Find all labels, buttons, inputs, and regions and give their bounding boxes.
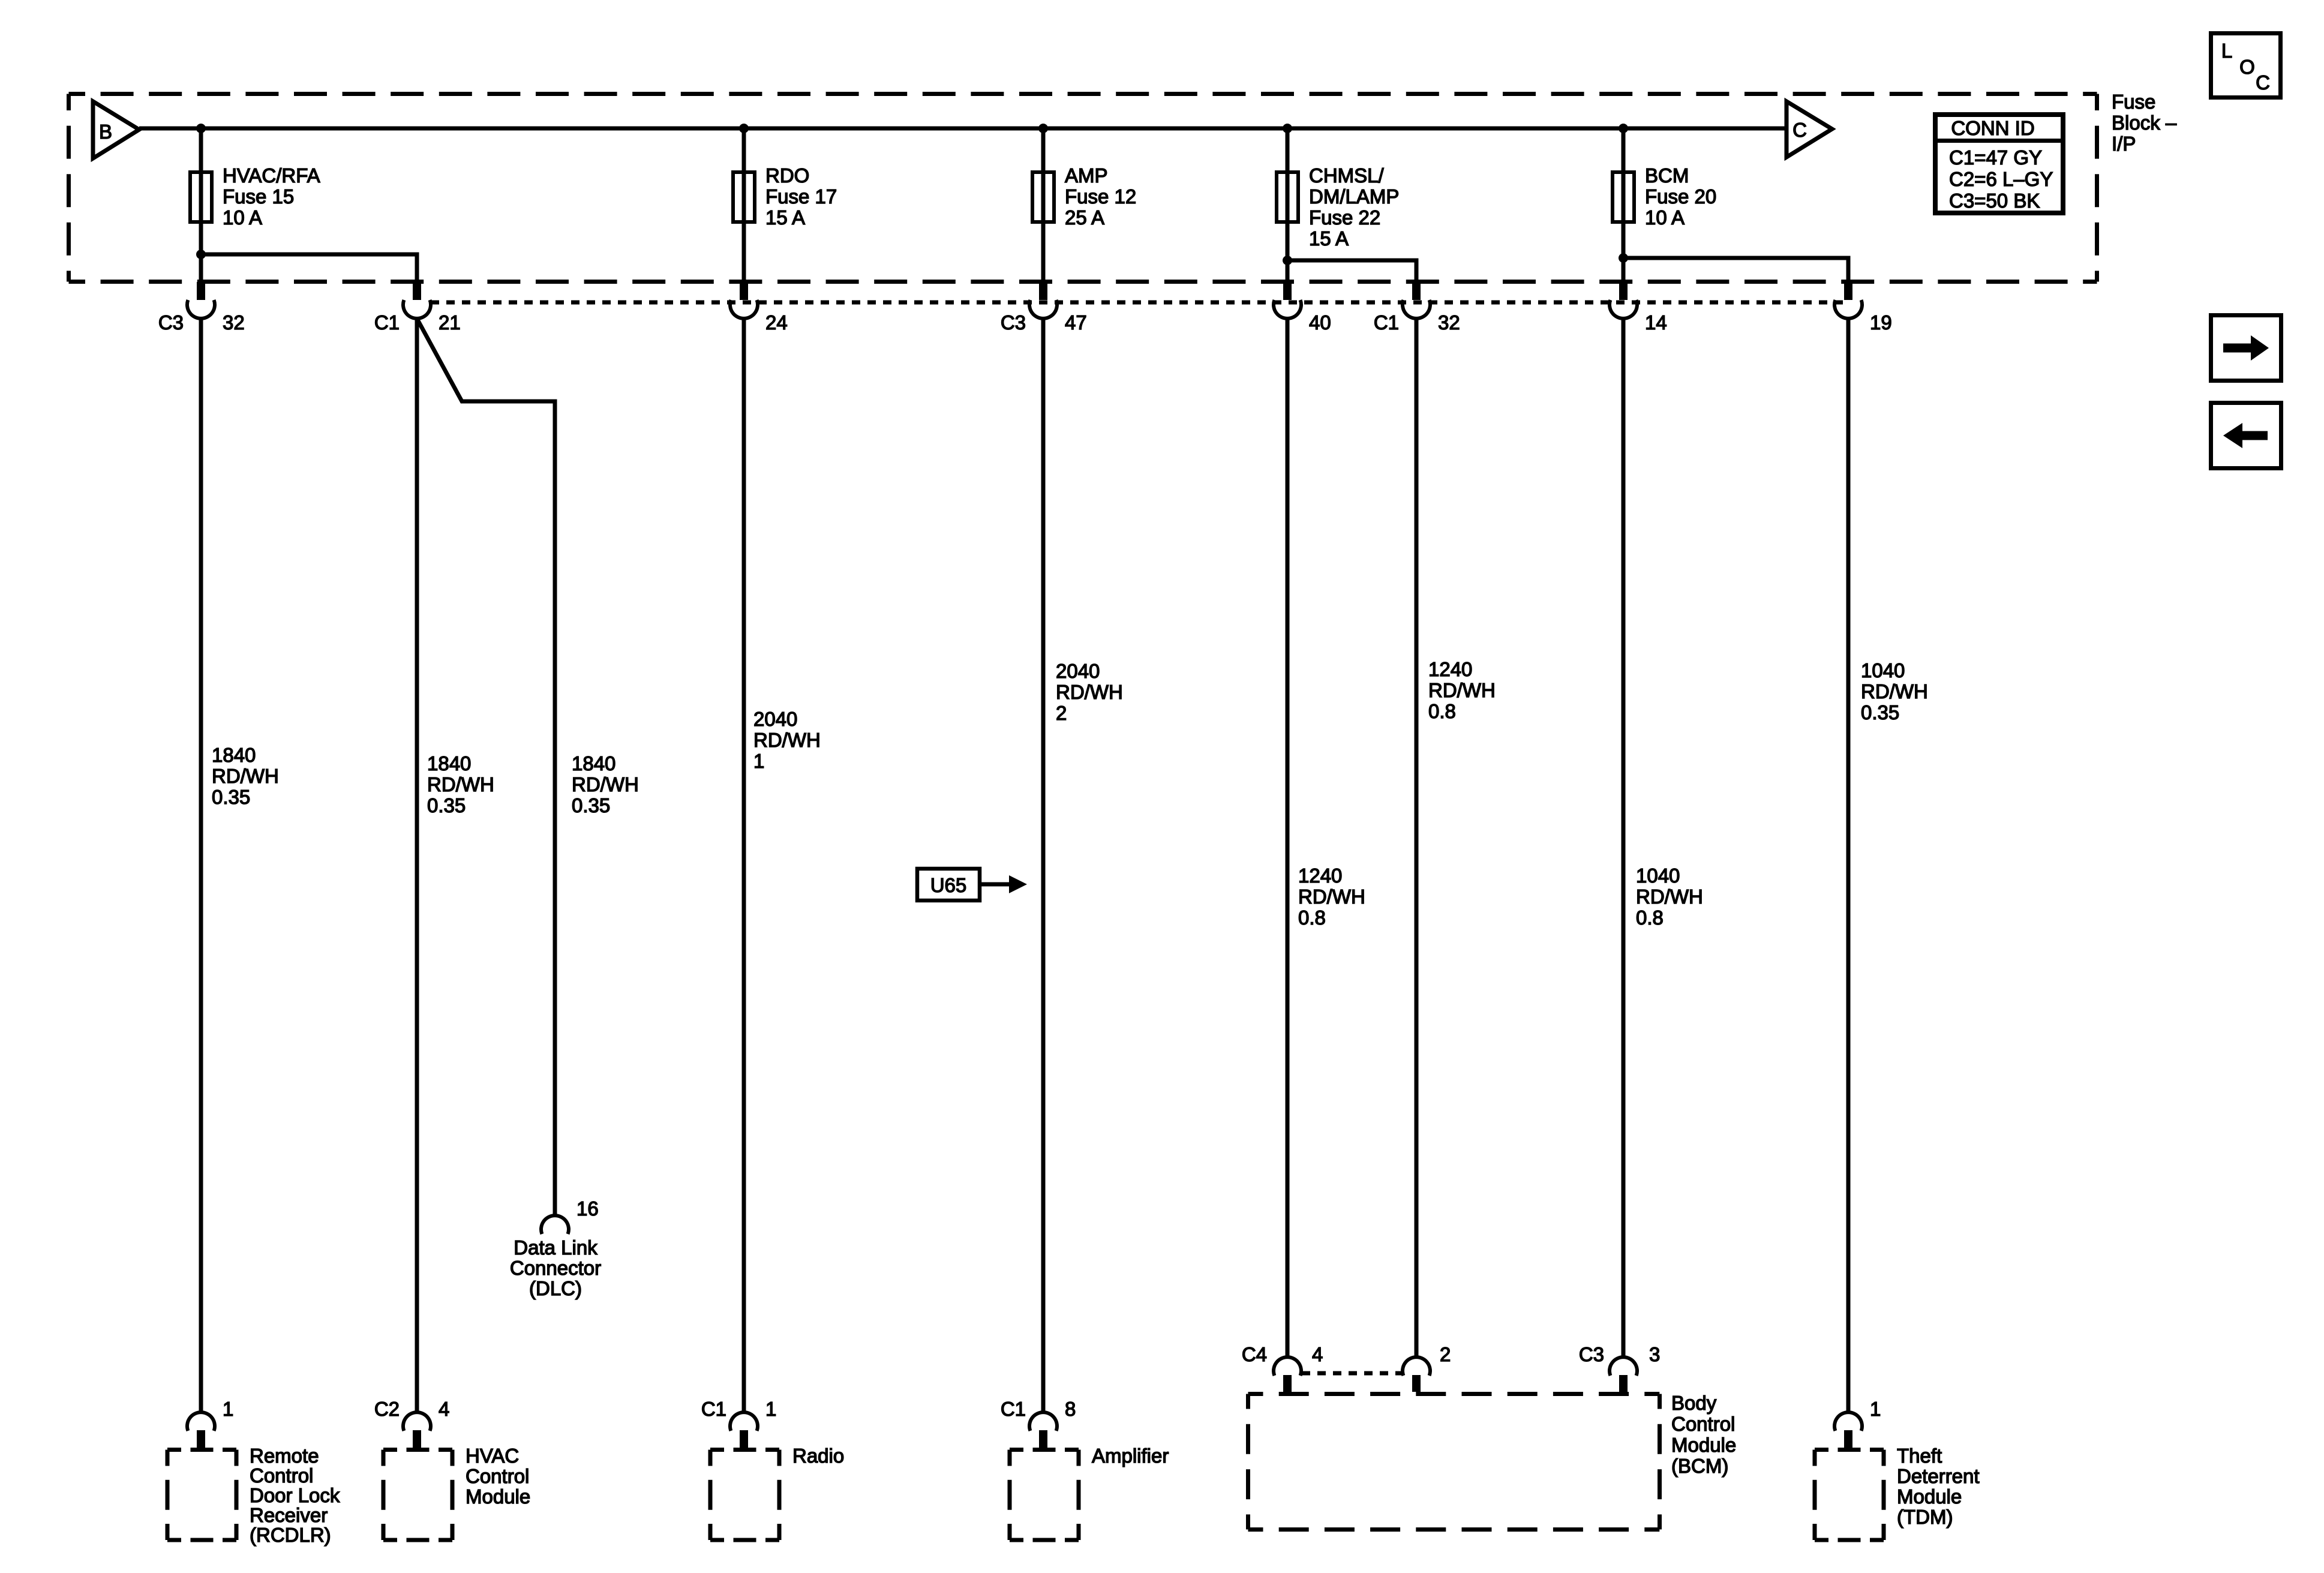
svg-text:19: 19	[1870, 311, 1892, 334]
svg-text:2040: 2040	[753, 708, 797, 730]
svg-text:RD/WH: RD/WH	[212, 765, 279, 787]
svg-text:47: 47	[1065, 311, 1087, 334]
svg-text:Control: Control	[250, 1464, 313, 1487]
svg-text:Door Lock: Door Lock	[250, 1484, 340, 1506]
svg-text:3: 3	[1649, 1343, 1660, 1365]
svg-text:25 A: 25 A	[1065, 206, 1104, 229]
svg-text:Connector: Connector	[510, 1257, 601, 1279]
svg-text:Module: Module	[1897, 1485, 1962, 1508]
svg-text:C1: C1	[1001, 1398, 1026, 1420]
svg-text:CONN ID: CONN ID	[1951, 117, 2034, 139]
svg-text:C3=50 BK: C3=50 BK	[1949, 190, 2040, 212]
svg-text:U65: U65	[930, 874, 967, 896]
svg-text:15 A: 15 A	[765, 206, 805, 229]
svg-text:C: C	[2256, 71, 2270, 94]
svg-text:C3: C3	[1579, 1343, 1604, 1365]
svg-text:1: 1	[223, 1398, 233, 1420]
svg-text:Fuse 17: Fuse 17	[765, 185, 837, 208]
svg-text:Fuse 12: Fuse 12	[1065, 185, 1136, 208]
svg-text:0.8: 0.8	[1298, 906, 1326, 929]
svg-text:C3: C3	[158, 311, 184, 334]
svg-text:24: 24	[765, 311, 788, 334]
svg-text:(TDM): (TDM)	[1897, 1506, 1953, 1528]
svg-text:1840: 1840	[572, 752, 615, 775]
svg-text:32: 32	[1438, 311, 1460, 334]
svg-text:C4: C4	[1242, 1343, 1267, 1365]
svg-text:C: C	[1792, 119, 1807, 141]
svg-text:Control: Control	[466, 1465, 529, 1487]
svg-text:C2=6 L–GY: C2=6 L–GY	[1949, 168, 2053, 190]
svg-text:4: 4	[439, 1398, 449, 1420]
svg-text:0.8: 0.8	[1428, 700, 1456, 722]
svg-text:1: 1	[753, 750, 764, 772]
svg-text:15 A: 15 A	[1309, 227, 1349, 250]
svg-text:0.8: 0.8	[1636, 906, 1664, 929]
svg-text:Control: Control	[1671, 1413, 1735, 1435]
svg-text:Fuse: Fuse	[2112, 91, 2155, 113]
svg-text:RD/WH: RD/WH	[1636, 885, 1703, 908]
svg-text:Theft: Theft	[1897, 1445, 1942, 1467]
svg-text:10 A: 10 A	[223, 206, 262, 229]
svg-text:Module: Module	[466, 1485, 530, 1508]
svg-text:10 A: 10 A	[1645, 206, 1685, 229]
svg-text:16: 16	[577, 1197, 599, 1220]
svg-text:32: 32	[223, 311, 245, 334]
svg-text:2040: 2040	[1056, 660, 1100, 682]
svg-text:(BCM): (BCM)	[1671, 1455, 1728, 1477]
svg-text:40: 40	[1309, 311, 1331, 334]
svg-text:HVAC: HVAC	[466, 1445, 519, 1467]
svg-text:2: 2	[1440, 1343, 1451, 1365]
svg-text:8: 8	[1065, 1398, 1076, 1420]
svg-text:Module: Module	[1671, 1434, 1736, 1456]
svg-text:1840: 1840	[212, 744, 256, 766]
svg-text:HVAC/RFA: HVAC/RFA	[223, 164, 320, 187]
svg-text:I/P: I/P	[2112, 133, 2136, 155]
svg-text:0.35: 0.35	[427, 794, 466, 816]
svg-text:1240: 1240	[1428, 658, 1472, 680]
svg-text:(RCDLR): (RCDLR)	[250, 1524, 331, 1546]
svg-text:RD/WH: RD/WH	[427, 773, 494, 795]
svg-text:Block –: Block –	[2112, 112, 2177, 134]
svg-text:Radio: Radio	[792, 1445, 844, 1467]
svg-text:C1: C1	[1374, 311, 1399, 334]
svg-text:B: B	[99, 121, 112, 143]
svg-text:O: O	[2239, 56, 2255, 78]
svg-text:BCM: BCM	[1645, 164, 1689, 187]
svg-text:2: 2	[1056, 702, 1067, 724]
svg-text:RD/WH: RD/WH	[1861, 680, 1928, 703]
svg-text:C2: C2	[374, 1398, 400, 1420]
svg-text:RDO: RDO	[765, 164, 809, 187]
svg-text:Body: Body	[1671, 1392, 1717, 1414]
svg-text:C1: C1	[701, 1398, 726, 1420]
svg-text:Receiver: Receiver	[250, 1504, 328, 1526]
svg-text:RD/WH: RD/WH	[1056, 681, 1123, 703]
svg-text:AMP: AMP	[1065, 164, 1108, 187]
svg-text:RD/WH: RD/WH	[572, 773, 639, 795]
svg-text:Data Link: Data Link	[514, 1236, 597, 1259]
svg-text:C3: C3	[1001, 311, 1026, 334]
svg-text:C1=47 GY: C1=47 GY	[1949, 146, 2042, 169]
svg-text:1840: 1840	[427, 752, 471, 775]
svg-text:0.35: 0.35	[1861, 701, 1899, 724]
svg-text:RD/WH: RD/WH	[753, 729, 821, 751]
svg-text:C1: C1	[374, 311, 400, 334]
svg-text:1040: 1040	[1861, 659, 1905, 682]
svg-text:Fuse 15: Fuse 15	[223, 185, 294, 208]
svg-text:CHMSL/: CHMSL/	[1309, 164, 1385, 187]
svg-text:21: 21	[439, 311, 461, 334]
svg-text:1: 1	[765, 1398, 776, 1420]
svg-text:1040: 1040	[1636, 864, 1680, 887]
svg-text:Fuse 20: Fuse 20	[1645, 185, 1716, 208]
svg-text:Amplifier: Amplifier	[1092, 1445, 1169, 1467]
svg-text:1: 1	[1870, 1398, 1881, 1420]
svg-text:(DLC): (DLC)	[529, 1277, 582, 1299]
svg-text:0.35: 0.35	[572, 794, 610, 816]
svg-text:4: 4	[1312, 1343, 1323, 1365]
svg-text:Fuse 22: Fuse 22	[1309, 206, 1380, 229]
svg-text:Deterrent: Deterrent	[1897, 1465, 1980, 1487]
svg-text:1240: 1240	[1298, 864, 1342, 887]
svg-text:0.35: 0.35	[212, 786, 250, 808]
svg-text:14: 14	[1645, 311, 1667, 334]
svg-text:RD/WH: RD/WH	[1298, 885, 1365, 908]
svg-text:DM/LAMP: DM/LAMP	[1309, 185, 1399, 208]
svg-text:Remote: Remote	[250, 1445, 319, 1467]
svg-text:RD/WH: RD/WH	[1428, 679, 1496, 701]
svg-text:L: L	[2221, 40, 2232, 62]
